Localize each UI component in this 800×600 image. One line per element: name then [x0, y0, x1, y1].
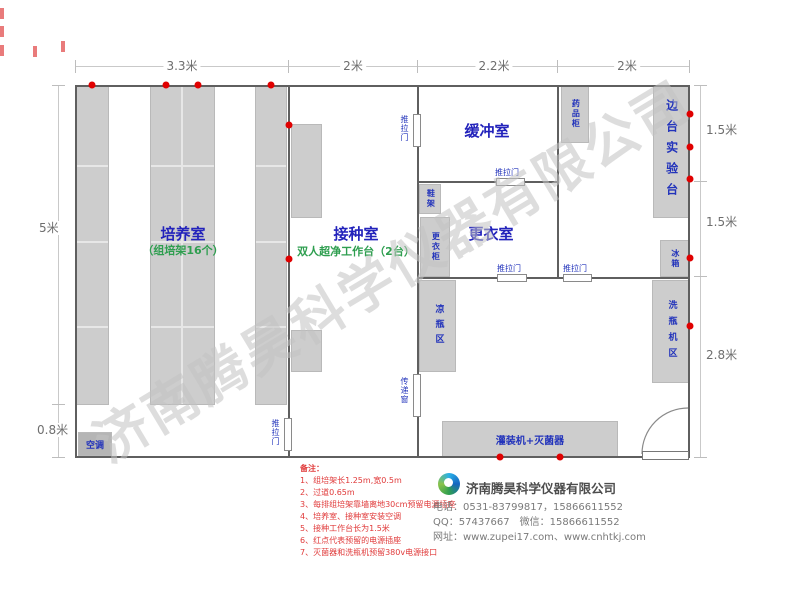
power-outlet-dot	[687, 144, 694, 151]
dim-label-right-3: 2.8米	[703, 348, 740, 362]
dim-label-right-1: 1.5米	[703, 123, 740, 137]
dim-label-left-1: 5米	[36, 221, 62, 235]
note-item: 2、过道0.65m	[300, 488, 355, 498]
dim-tick	[417, 60, 418, 73]
sliding-door-symbol	[497, 274, 527, 282]
power-outlet-dot	[687, 255, 694, 262]
wall-cultivation-inoculation	[288, 85, 290, 458]
company-logo	[438, 473, 460, 495]
dim-tick	[689, 60, 690, 73]
room-sub-inoculation: 双人超净工作台（2台）	[276, 243, 436, 259]
edge-artifact	[33, 46, 37, 57]
note-item: 4、培养室、接种室安装空调	[300, 512, 401, 522]
note-item: 7、灭菌器和洗瓶机预留380v电源接口	[300, 548, 437, 558]
dim-line-right	[700, 85, 701, 458]
power-outlet-dot	[687, 176, 694, 183]
notes-title: 备注：	[300, 464, 324, 474]
sliding-door-symbol	[496, 178, 525, 186]
dim-tick	[694, 85, 707, 86]
dim-label-top-3: 2.2米	[475, 59, 512, 73]
power-outlet-dot	[286, 122, 293, 129]
dim-tick	[694, 181, 707, 182]
wall-changing-bottom	[417, 277, 690, 279]
room-label-buffer: 缓冲室	[427, 120, 547, 141]
dim-line-left	[58, 85, 59, 458]
note-item: 6、红点代表预留的电源插座	[300, 536, 401, 546]
power-outlet-dot	[497, 454, 504, 461]
edge-artifact	[0, 8, 4, 19]
entrance-door-leaf	[642, 451, 689, 460]
note-item: 5、接种工作台长为1.5米	[300, 524, 390, 534]
sliding-door-label: 推拉门	[400, 115, 408, 142]
dim-tick	[52, 85, 65, 86]
dim-tick	[288, 60, 289, 73]
dim-tick	[75, 60, 76, 73]
sliding-door-label: 推拉门	[497, 263, 521, 274]
sliding-door-label: 推拉门	[495, 167, 519, 178]
dim-tick	[52, 404, 65, 405]
dim-tick	[694, 276, 707, 277]
sliding-door-label: 推拉门	[563, 263, 587, 274]
room-label-cultivation: 培养室	[103, 223, 263, 244]
room-label-changing: 更衣室	[431, 223, 551, 244]
company-name: 济南腾昊科学仪器有限公司	[466, 478, 616, 497]
company-qq: QQ：57437667 微信：15866611552	[433, 513, 620, 528]
company-web: 网址：www.zupei17.com、www.cnhtkj.com	[433, 528, 646, 543]
power-outlet-dot	[268, 82, 275, 89]
power-outlet-dot	[195, 82, 202, 89]
note-item: 1、组培架长1.25m,宽0.5m	[300, 476, 402, 486]
power-outlet-dot	[557, 454, 564, 461]
dim-label-top-4: 2米	[614, 59, 640, 73]
sliding-door-symbol	[563, 274, 592, 282]
edge-artifact	[61, 41, 65, 52]
room-sub-cultivation: （组培架16个）	[103, 242, 263, 258]
edge-artifact	[0, 45, 4, 56]
sliding-door-label: 推拉门	[271, 419, 279, 446]
power-outlet-dot	[163, 82, 170, 89]
wall-buffer-changing	[417, 181, 559, 183]
entrance-door-arc	[640, 406, 690, 456]
dim-tick	[557, 60, 558, 73]
power-outlet-dot	[286, 256, 293, 263]
dim-label-top-2: 2米	[340, 59, 366, 73]
dim-tick	[52, 457, 65, 458]
dim-label-right-2: 1.5米	[703, 215, 740, 229]
sliding-door-symbol	[413, 114, 421, 147]
company-phone: 电话：0531-83799817，15866611552	[433, 498, 623, 513]
dim-label-top-1: 3.3米	[163, 59, 200, 73]
edge-artifact	[0, 26, 4, 37]
transfer-window-label: 传递窗	[400, 377, 408, 404]
dim-label-left-2: 0.8米	[34, 423, 71, 437]
wall-outer	[75, 85, 690, 458]
sliding-door-symbol	[284, 418, 292, 451]
transfer-window-symbol	[413, 374, 421, 417]
floor-plan: 济南腾昊科学仪器有限公司 3.3米 2米 2.2米 2米 5米 0.8米 1.5…	[0, 0, 800, 600]
room-label-inoculation: 接种室	[276, 223, 436, 244]
power-outlet-dot	[89, 82, 96, 89]
dim-tick	[694, 457, 707, 458]
power-outlet-dot	[687, 111, 694, 118]
power-outlet-dot	[687, 323, 694, 330]
